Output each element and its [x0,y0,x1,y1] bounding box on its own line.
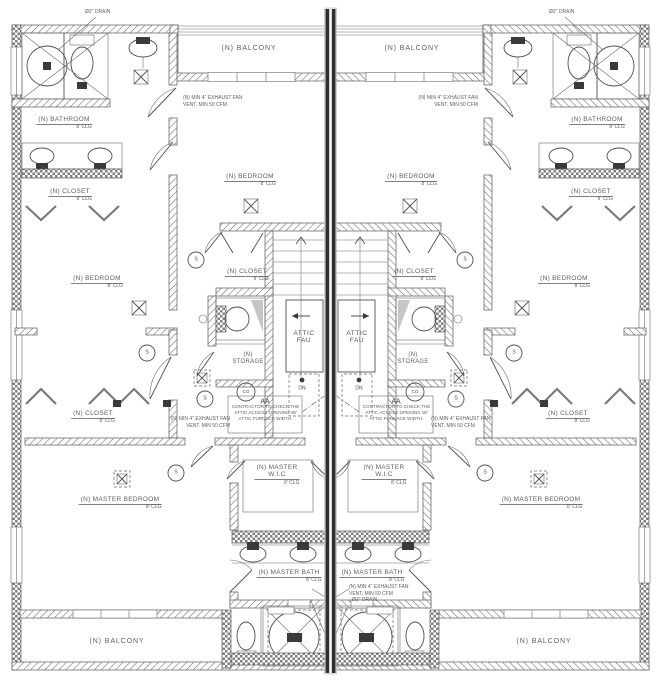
bathroom-top [12,17,177,178]
room-name: STORAGE [230,359,265,366]
co-detector-symbol: CO [243,390,250,395]
smoke-detector-symbol: S [463,258,466,263]
room-label-bedroom-outer-right: (N) BEDROOM8' CLG [538,275,590,290]
room-label-master-bath-right: (N) MASTER BATH8' CLG [339,569,404,584]
room-label-bathroom-right: (N) BATHROOM8' CLG [569,116,625,131]
room-label-closet-top-right: (N) CLOSET8' CLG [569,188,613,203]
balcony-top [170,25,330,82]
note-line: (N) MIN 4" EXHAUST FAN [349,584,408,591]
equipment-name: FAU [291,337,316,344]
exhaust-note-top-right: (N) MIN 4" EXHAUST FANVENT. MIN 50 CFM [412,95,478,108]
room-label-master-bath-left: (N) MASTER BATH8' CLG [256,569,321,584]
note-line: ATTIC FURNACE WIDTH. [229,416,302,422]
co-detector-symbol: CO [412,390,419,395]
note-line: VENT. MIN 50 CFM [412,102,478,109]
room-label-storage-left: (N)STORAGE [230,352,265,366]
ceiling-height: 8' CLG [48,197,92,203]
room-name: (N) [230,352,265,359]
room-label-master-wic-left: (N) MASTERW.I.C8' CLG [255,464,300,487]
hall-walls [25,438,305,467]
room-name: STORAGE [395,359,430,366]
mech-storage [194,296,273,387]
floor-plan-sheet: (N) BALCONY (N) BALCONY (N) BALCONY (N) … [0,0,661,696]
note-line: (N) MIN 4" EXHAUST FAN [183,95,242,102]
room-label-balcony-top-left: (N) BALCONY [219,45,278,53]
exhaust-note-bottom: (N) MIN 4" EXHAUST FANVENT. MIN 50 CFM [349,584,408,597]
ceiling-height: 8' CLG [36,125,92,131]
drain-note-top-right: Ø2" DRAIN [549,9,574,16]
equipment-name: FAU [344,337,369,344]
smoke-detector-symbol: S [194,258,197,263]
contractor-note-left: CONTRACTOR TO CHECK THEATTIC ACCESS OPEN… [229,404,302,422]
room-label-closet-bottom-right: (N) CLOSET8' CLG [546,410,590,425]
room-label-master-wic-right: (N) MASTERW.I.C8' CLG [362,464,407,487]
room-name: (N) MASTER [362,464,407,471]
room-name: (N) BALCONY [87,638,146,646]
smoke-detector-symbol: S [483,471,486,476]
equipment-name: ATTIC [344,330,369,337]
room-label-closet-top-left: (N) CLOSET8' CLG [48,188,92,203]
bedroom-center-fixtures [244,199,258,213]
room-label-master-bedroom-left: (N) MASTER BEDROOM8' CLG [79,496,162,511]
smoke-detector-symbol: S [512,351,515,356]
drain-note-bottom: Ø2" DRAIN [352,597,377,604]
label-attic-fau-right: ATTICFAU [344,330,369,345]
note-line: ATTIC FURNACE WIDTH. [360,416,433,422]
floor-plan-linework [0,0,661,696]
note-line: VENT. MIN 50 CFM [431,423,490,430]
stair-down-label: DN [298,387,305,392]
label-attic-fau-left: ATTICFAU [291,330,316,345]
smoke-detector-symbol: S [454,397,457,402]
room-label-bedroom-center-right: (N) BEDROOM8' CLG [385,173,437,188]
ceiling-height: 8' CLG [546,419,590,425]
smoke-detector-symbol: S [203,397,206,402]
room-label-balcony-bottom-left: (N) BALCONY [87,638,146,646]
ceiling-height: 8' CLG [256,578,321,584]
room-name: (N) [395,352,430,359]
stair-down-label: DN [355,387,362,392]
room-name: (N) BALCONY [382,45,441,53]
room-label-bedroom-outer-left: (N) BEDROOM8' CLG [71,275,123,290]
room-name: (N) BALCONY [219,45,278,53]
equipment-name: ATTIC [291,330,316,337]
contractor-note-right: CONTRACTOR TO CHECK THEATTIC ACCESS OPEN… [360,404,433,422]
closet-top [26,206,119,220]
note-line: VENT. MIN 50 CFM [183,102,242,109]
smoke-detector-symbol: S [145,351,148,356]
room-label-closet-center-left: (N) CLOSET8' CLG [225,268,269,283]
smoke-detector-symbol: S [174,471,177,476]
ceiling-height: 8' CLG [79,505,162,511]
room-label-storage-right: (N)STORAGE [395,352,430,366]
ceiling-height: 8' CLG [71,284,123,290]
exhaust-note-mid-left: (N) MIN 4" EXHAUST FANVENT. MIN 50 CFM [152,416,230,429]
ceiling-height: 8' CLG [385,182,437,188]
note-line: VENT. MIN 50 CFM [152,423,230,430]
room-label-bathroom-left: (N) BATHROOM8' CLG [36,116,92,131]
ceiling-height: 8' CLG [225,277,269,283]
drain-note-top-left: Ø2" DRAIN [85,9,110,16]
room-label-balcony-top-right: (N) BALCONY [382,45,441,53]
ceiling-height: 8' CLG [392,277,436,283]
exhaust-note-top-left: (N) MIN 4" EXHAUST FANVENT. MIN 50 CFM [183,95,242,108]
ceiling-height: 8' CLG [224,182,276,188]
ceiling-height: 8' CLG [500,505,583,511]
ceiling-height: 8' CLG [255,481,300,487]
room-label-closet-center-right: (N) CLOSET8' CLG [392,268,436,283]
exhaust-note-mid-right: (N) MIN 4" EXHAUST FANVENT. MIN 50 CFM [431,416,490,429]
room-name: (N) BALCONY [514,638,573,646]
note-line: (N) MIN 4" EXHAUST FAN [431,416,490,423]
ceiling-height: 8' CLG [538,284,590,290]
note-line: (N) MIN 4" EXHAUST FAN [412,95,478,102]
ceiling-height: 8' CLG [71,419,115,425]
ceiling-height: 8' CLG [362,481,407,487]
party-wall [325,8,337,674]
ceiling-height: 8' CLG [569,125,625,131]
room-label-bedroom-center-left: (N) BEDROOM8' CLG [224,173,276,188]
room-name: (N) MASTER [255,464,300,471]
room-label-closet-bottom-left: (N) CLOSET8' CLG [71,410,115,425]
room-label-master-bedroom-right: (N) MASTER BEDROOM8' CLG [500,496,583,511]
ceiling-height: 8' CLG [569,197,613,203]
room-label-balcony-bottom-right: (N) BALCONY [514,638,573,646]
